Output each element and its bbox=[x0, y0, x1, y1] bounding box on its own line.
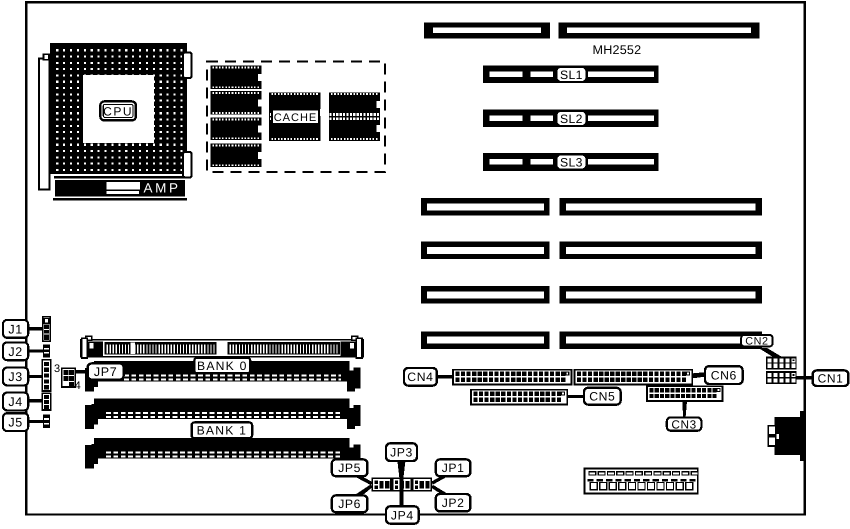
svg-text:J2: J2 bbox=[8, 345, 22, 359]
svg-text:SL3: SL3 bbox=[560, 155, 583, 169]
svg-text:JP4: JP4 bbox=[391, 508, 414, 522]
svg-text:CN5: CN5 bbox=[589, 390, 615, 404]
svg-text:AMP: AMP bbox=[144, 180, 181, 195]
svg-text:CN2: CN2 bbox=[745, 336, 768, 348]
svg-text:CPU: CPU bbox=[103, 105, 133, 119]
svg-text:3: 3 bbox=[54, 363, 60, 375]
svg-text:CN1: CN1 bbox=[818, 372, 844, 386]
svg-text:JP6: JP6 bbox=[338, 497, 361, 511]
svg-text:J4: J4 bbox=[8, 395, 22, 409]
svg-text:SL1: SL1 bbox=[560, 68, 583, 82]
svg-text:J5: J5 bbox=[8, 416, 22, 430]
svg-text:JP3: JP3 bbox=[390, 446, 413, 460]
svg-text:CN3: CN3 bbox=[671, 417, 696, 431]
svg-text:4: 4 bbox=[75, 380, 81, 392]
svg-text:MH2552: MH2552 bbox=[593, 43, 642, 57]
svg-text:CN4: CN4 bbox=[407, 370, 433, 384]
svg-text:JP2: JP2 bbox=[442, 496, 465, 510]
svg-text:CN6: CN6 bbox=[711, 368, 737, 382]
svg-text:JP5: JP5 bbox=[338, 461, 361, 475]
svg-text:BANK 1: BANK 1 bbox=[197, 424, 248, 438]
svg-text:SL2: SL2 bbox=[560, 112, 583, 126]
svg-text:BANK 0: BANK 0 bbox=[197, 359, 248, 373]
svg-text:CACHE: CACHE bbox=[274, 112, 318, 124]
svg-text:JP1: JP1 bbox=[442, 461, 465, 475]
svg-text:J3: J3 bbox=[8, 370, 22, 384]
svg-text:JP7: JP7 bbox=[94, 365, 117, 379]
svg-text:J1: J1 bbox=[8, 322, 22, 336]
